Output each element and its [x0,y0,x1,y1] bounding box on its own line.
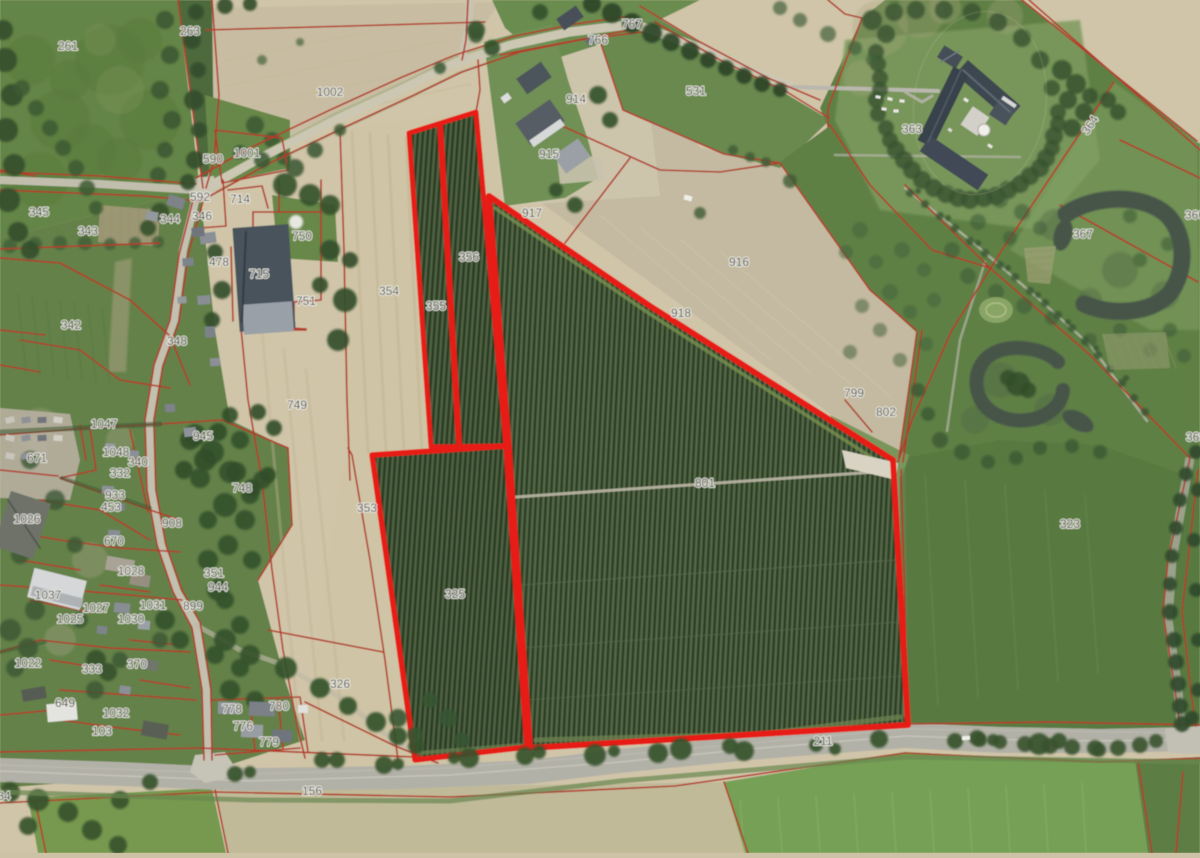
svg-text:944: 944 [208,580,228,594]
svg-text:355: 355 [426,299,446,313]
svg-text:353: 353 [357,501,377,515]
svg-text:531: 531 [686,84,706,98]
svg-text:779: 779 [259,735,279,749]
svg-text:1025: 1025 [57,612,84,626]
svg-text:325: 325 [445,587,465,601]
svg-text:367: 367 [1073,227,1093,241]
svg-text:748: 748 [232,481,252,495]
svg-text:1047: 1047 [91,417,118,431]
svg-text:778: 778 [222,702,242,716]
svg-text:670: 670 [104,534,124,548]
svg-text:916: 916 [729,255,749,269]
svg-text:914: 914 [566,92,586,106]
svg-text:348: 348 [167,334,187,348]
svg-text:1037: 1037 [35,588,62,602]
svg-text:908: 908 [162,516,182,530]
svg-text:346: 346 [192,209,212,223]
svg-text:103: 103 [92,724,112,738]
svg-text:211: 211 [813,734,832,748]
svg-text:766: 766 [588,33,608,47]
svg-text:343: 343 [78,224,98,238]
svg-text:899: 899 [183,599,203,613]
svg-text:363: 363 [902,122,922,136]
svg-text:751: 751 [296,294,316,308]
svg-text:1048: 1048 [103,445,130,459]
svg-text:261: 261 [58,39,78,53]
svg-text:1028: 1028 [118,564,145,578]
svg-text:714: 714 [230,192,250,206]
svg-text:1027: 1027 [83,601,110,615]
svg-text:749: 749 [287,398,307,412]
svg-text:356: 356 [459,250,479,264]
svg-text:453: 453 [101,500,121,514]
svg-text:351: 351 [204,566,224,580]
svg-text:915: 915 [539,147,559,161]
svg-text:592: 592 [190,190,210,204]
svg-text:715: 715 [249,267,269,281]
svg-text:1032: 1032 [103,706,130,720]
svg-text:1031: 1031 [140,598,167,612]
svg-text:917: 917 [522,206,542,220]
svg-text:332: 332 [110,466,130,480]
svg-text:780: 780 [269,699,289,713]
svg-text:649: 649 [55,696,75,710]
svg-text:1030: 1030 [118,612,145,626]
svg-text:1026: 1026 [14,512,41,526]
svg-text:671: 671 [27,451,47,465]
svg-text:799: 799 [844,386,864,400]
svg-text:368: 368 [1186,430,1200,444]
svg-text:342: 342 [61,318,81,332]
svg-text:750: 750 [292,229,312,243]
svg-text:345: 345 [29,205,49,219]
svg-text:945: 945 [193,429,213,443]
svg-text:263: 263 [180,24,200,38]
svg-text:370: 370 [127,657,147,671]
svg-text:767: 767 [622,17,642,31]
svg-text:590: 590 [203,152,223,166]
svg-text:1002: 1002 [317,85,344,99]
svg-text:333: 333 [82,662,102,676]
svg-text:1001: 1001 [234,146,261,160]
svg-text:1022: 1022 [15,656,42,670]
svg-text:802: 802 [876,405,896,419]
svg-text:34: 34 [0,789,11,803]
svg-text:323: 323 [1060,517,1080,531]
svg-text:326: 326 [330,677,350,691]
svg-text:801: 801 [695,476,715,490]
svg-text:340: 340 [128,455,148,469]
svg-text:918: 918 [671,306,691,320]
svg-text:344: 344 [160,212,180,226]
svg-text:354: 354 [379,284,399,298]
svg-text:156: 156 [302,784,322,798]
svg-text:776: 776 [233,719,253,733]
svg-text:478: 478 [209,255,229,269]
svg-text:366: 366 [1185,208,1200,222]
